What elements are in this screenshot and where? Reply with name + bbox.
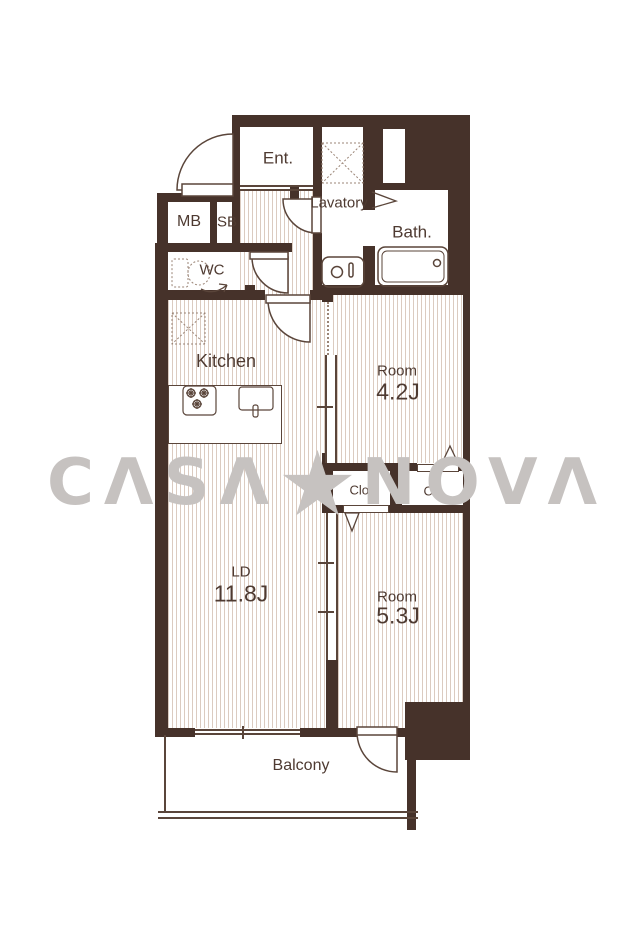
lavatory-arrow-icon: [372, 192, 396, 208]
watermark-text-left: CΛSΛ: [47, 451, 279, 515]
living-dining-label: LD: [231, 565, 250, 580]
kitchen-label: Kitchen: [196, 352, 256, 370]
floor-plan: Ent. Lavatory Bath. MB SB WC Kitchen Roo…: [0, 0, 630, 950]
balcony-door-arc: [357, 727, 397, 772]
stove-icon: [183, 386, 216, 415]
entrance-door-arc: [177, 134, 233, 196]
wc-door-swing-arrow: [201, 284, 227, 292]
meter-box-label: MB: [177, 214, 201, 230]
fridge-space-icon: [172, 313, 205, 344]
casa-nova-watermark: CΛSΛ★NOVΛ: [47, 438, 607, 528]
living-dining-size: 11.8J: [214, 583, 269, 606]
washer-space-icon: [322, 143, 363, 183]
lavatory-label: Lavatory: [310, 196, 368, 211]
watermark-text-right: NOVΛ: [362, 451, 607, 515]
wc-label: WC: [200, 263, 225, 278]
star-icon: ★: [277, 440, 358, 530]
stove-burners: [186, 388, 209, 409]
kitchen-door-arc: [266, 295, 310, 342]
bathtub-icon: [378, 247, 448, 286]
wc-door-arc: [250, 252, 288, 293]
bath-label: Bath.: [392, 224, 432, 241]
shaft-box-label: SB: [217, 215, 237, 230]
sink-icon: [322, 257, 364, 287]
room1-label: Room: [377, 364, 417, 379]
kitchen-sink-icon: [239, 387, 273, 417]
entrance-label: Ent.: [263, 150, 293, 167]
room1-size: 4.2J: [376, 381, 419, 404]
room2-size: 5.3J: [376, 605, 419, 628]
balcony-label: Balcony: [273, 758, 330, 774]
